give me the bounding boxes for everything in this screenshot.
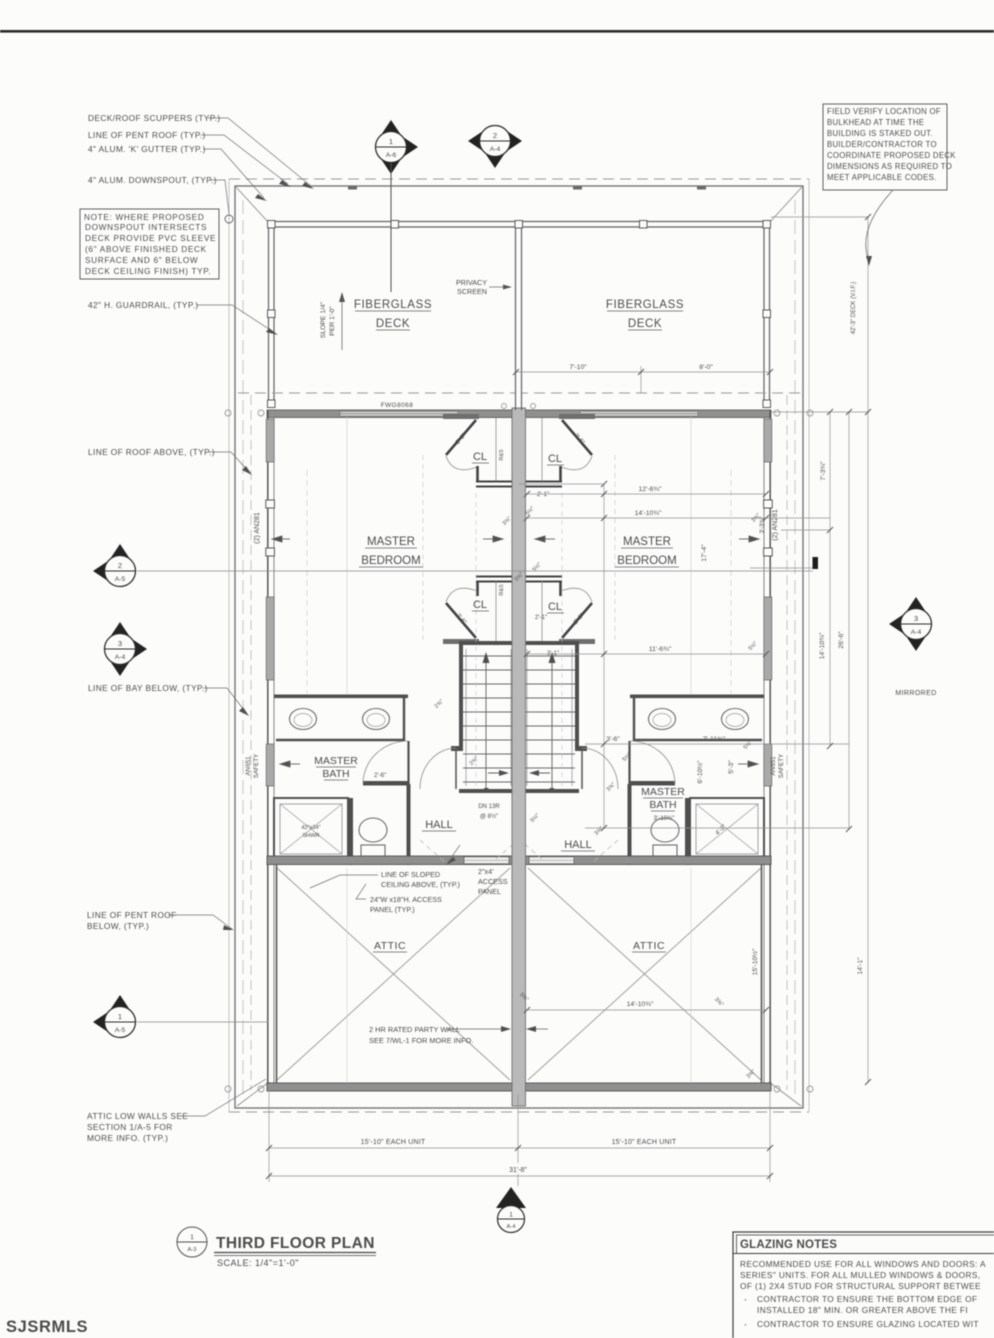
svg-text:42"x34": 42"x34"	[301, 825, 320, 831]
svg-text:-: -	[744, 1319, 747, 1329]
svg-text:42'-3" DECK (V.I.F.): 42'-3" DECK (V.I.F.)	[851, 282, 857, 334]
svg-text:MIRRORED: MIRRORED	[895, 690, 936, 697]
svg-text:A-5: A-5	[115, 1027, 126, 1034]
svg-text:ATTIC: ATTIC	[633, 940, 665, 952]
svg-text:(2) AN281: (2) AN281	[772, 509, 779, 541]
svg-text:FIBERGLASS: FIBERGLASS	[606, 299, 684, 311]
svg-text:PANEL (TYP.): PANEL (TYP.)	[370, 905, 415, 914]
svg-text:2'-1": 2'-1"	[537, 491, 549, 498]
svg-text:17'-4": 17'-4"	[701, 544, 708, 562]
svg-text:SEE 7/WL-1 FOR MORE INFO.: SEE 7/WL-1 FOR MORE INFO.	[369, 1036, 473, 1045]
svg-text:SCREEN: SCREEN	[457, 287, 487, 296]
svg-text:R&S: R&S	[499, 449, 505, 461]
svg-text:@ 8½": @ 8½"	[480, 813, 498, 820]
svg-text:A-4: A-4	[490, 146, 501, 153]
svg-text:THIRD FLOOR PLAN: THIRD FLOOR PLAN	[216, 1235, 375, 1252]
svg-text:SERIES" UNITS. FOR ALL MULLED: SERIES" UNITS. FOR ALL MULLED WINDOWS & …	[740, 1270, 980, 1280]
svg-text:(2) AN281: (2) AN281	[254, 512, 261, 544]
svg-text:4" ALUM. DOWNSPOUT, (TYP.): 4" ALUM. DOWNSPOUT, (TYP.)	[88, 175, 217, 185]
svg-text:BUILDER/CONTRACTOR TO: BUILDER/CONTRACTOR TO	[827, 140, 937, 149]
svg-text:BATH: BATH	[322, 768, 349, 780]
svg-text:14'-10¾": 14'-10¾"	[635, 510, 662, 517]
svg-text:ATTIC LOW WALLS SEE: ATTIC LOW WALLS SEE	[87, 1111, 188, 1121]
svg-text:CONTRACTOR TO ENSURE GLAZING L: CONTRACTOR TO ENSURE GLAZING LOCATED WIT	[757, 1319, 979, 1329]
svg-text:ACCESS: ACCESS	[478, 877, 508, 886]
svg-text:BEDROOM: BEDROOM	[617, 555, 676, 567]
svg-text:SAFETY: SAFETY	[778, 753, 785, 778]
svg-text:15'-10" EACH UNIT: 15'-10" EACH UNIT	[361, 1139, 426, 1146]
svg-text:LINE OF BAY BELOW, (TYP.): LINE OF BAY BELOW, (TYP.)	[88, 683, 208, 693]
svg-text:BULKHEAD AT TIME THE: BULKHEAD AT TIME THE	[827, 118, 924, 127]
svg-text:4" ALUM. 'K' GUTTER (TYP.): 4" ALUM. 'K' GUTTER (TYP.)	[88, 144, 206, 154]
svg-text:PANEL: PANEL	[478, 887, 501, 896]
svg-text:BEDROOM: BEDROOM	[361, 555, 420, 567]
svg-text:3: 3	[914, 614, 918, 623]
svg-text:3: 3	[118, 639, 122, 648]
svg-text:INSTALLED 18" MIN. OR GREATER: INSTALLED 18" MIN. OR GREATER ABOVE THE …	[757, 1305, 968, 1315]
svg-text:CL: CL	[473, 451, 487, 463]
svg-text:A-4: A-4	[115, 654, 126, 661]
svg-text:(6" ABOVE FINISHED DECK: (6" ABOVE FINISHED DECK	[85, 245, 207, 254]
svg-text:SJSRMLS: SJSRMLS	[6, 1318, 88, 1336]
svg-text:MASTER: MASTER	[314, 755, 358, 767]
svg-text:11'-6¾": 11'-6¾"	[649, 646, 672, 653]
svg-text:15'-10" EACH UNIT: 15'-10" EACH UNIT	[612, 1139, 677, 1146]
svg-text:3'-1": 3'-1"	[547, 650, 559, 657]
svg-text:MASTER: MASTER	[623, 536, 671, 548]
svg-text:LINE OF PENT ROOF: LINE OF PENT ROOF	[87, 910, 177, 920]
svg-text:3'-3¾": 3'-3¾"	[760, 517, 766, 534]
svg-text:CL: CL	[548, 601, 562, 613]
svg-text:7'-11¾": 7'-11¾"	[703, 736, 726, 743]
svg-text:14'-1": 14'-1"	[857, 957, 864, 975]
svg-text:2: 2	[118, 561, 122, 570]
svg-text:7'-3¾": 7'-3¾"	[820, 461, 827, 481]
svg-text:LINE OF SLOPED: LINE OF SLOPED	[381, 870, 440, 879]
svg-text:24"W x18"H. ACCESS: 24"W x18"H. ACCESS	[370, 895, 442, 904]
svg-text:SECTION 1/A-5 FOR: SECTION 1/A-5 FOR	[87, 1122, 173, 1132]
svg-text:LINE OF PENT ROOF (TYP.): LINE OF PENT ROOF (TYP.)	[88, 130, 206, 140]
svg-text:DECK: DECK	[376, 318, 410, 330]
svg-text:BELOW, (TYP.): BELOW, (TYP.)	[87, 921, 149, 931]
svg-text:COORDINATE PROPOSED DECK: COORDINATE PROPOSED DECK	[827, 151, 956, 160]
svg-text:SHWR: SHWR	[302, 833, 319, 839]
svg-text:SURFACE AND 6" BELOW: SURFACE AND 6" BELOW	[85, 256, 198, 265]
svg-text:LINE OF ROOF ABOVE, (TYP.): LINE OF ROOF ABOVE, (TYP.)	[88, 447, 215, 457]
svg-text:8'-0": 8'-0"	[699, 364, 713, 371]
svg-text:-: -	[744, 1294, 747, 1304]
svg-text:CEILING ABOVE, (TYP.): CEILING ABOVE, (TYP.)	[381, 880, 460, 889]
svg-text:3'-10¾": 3'-10¾"	[654, 815, 675, 822]
svg-text:1: 1	[118, 1012, 122, 1021]
svg-text:MASTER: MASTER	[641, 786, 685, 798]
svg-text:MORE INFO. (TYP.): MORE INFO. (TYP.)	[87, 1133, 168, 1143]
svg-text:MEET APPLICABLE CODES.: MEET APPLICABLE CODES.	[827, 173, 937, 182]
svg-text:DN 13R: DN 13R	[478, 804, 500, 810]
svg-text:A-6: A-6	[386, 152, 397, 159]
svg-text:14'-10¾": 14'-10¾"	[627, 1001, 654, 1008]
svg-text:2: 2	[493, 131, 497, 140]
svg-text:ATTIC: ATTIC	[374, 940, 406, 952]
svg-text:AN651: AN651	[770, 756, 777, 776]
svg-text:DIMENSIONS AS REQUIRED TO: DIMENSIONS AS REQUIRED TO	[827, 162, 952, 171]
svg-text:2'-6": 2'-6"	[374, 772, 386, 779]
svg-text:SLOPE 1/4": SLOPE 1/4"	[320, 301, 327, 338]
svg-text:CONTRACTOR TO ENSURE THE BOTTO: CONTRACTOR TO ENSURE THE BOTTOM EDGE OF	[757, 1294, 977, 1304]
svg-text:2"x4': 2"x4'	[478, 867, 494, 876]
svg-text:A-4: A-4	[506, 1224, 516, 1230]
svg-text:1: 1	[190, 1234, 194, 1241]
svg-text:2 HR RATED PARTY WALL: 2 HR RATED PARTY WALL	[369, 1025, 460, 1034]
svg-text:DECK PROVIDE PVC SLEEVE: DECK PROVIDE PVC SLEEVE	[85, 234, 216, 243]
svg-text:SAFETY: SAFETY	[253, 753, 260, 778]
svg-text:PRIVACY: PRIVACY	[456, 278, 487, 287]
svg-text:2'-1": 2'-1"	[535, 614, 547, 621]
svg-text:CL: CL	[473, 599, 487, 611]
svg-text:5'-3": 5'-3"	[728, 760, 735, 774]
svg-text:14'-10¾": 14'-10¾"	[819, 632, 826, 659]
svg-text:FWG8068: FWG8068	[381, 402, 413, 409]
svg-text:15'-10½": 15'-10½"	[751, 948, 759, 975]
svg-text:A-5: A-5	[115, 576, 126, 583]
svg-text:26'-6": 26'-6"	[838, 631, 845, 649]
svg-text:AN651: AN651	[245, 756, 252, 776]
svg-text:31'-8": 31'-8"	[509, 1167, 527, 1174]
svg-text:DECK/ROOF SCUPPERS (TYP.): DECK/ROOF SCUPPERS (TYP.)	[88, 113, 220, 123]
svg-text:PER 1'-0": PER 1'-0"	[329, 306, 336, 336]
svg-text:42" H. GUARDRAIL, (TYP.): 42" H. GUARDRAIL, (TYP.)	[88, 300, 199, 310]
svg-text:A-4: A-4	[911, 629, 922, 636]
svg-text:BUILDING IS STAKED OUT.: BUILDING IS STAKED OUT.	[827, 129, 933, 138]
svg-text:HALL: HALL	[564, 839, 592, 851]
svg-text:MASTER: MASTER	[367, 536, 415, 548]
svg-text:HALL: HALL	[425, 819, 453, 831]
svg-text:7'-10": 7'-10"	[569, 364, 587, 371]
svg-text:OF (1) 2X4 STUD FOR STRUCTURAL: OF (1) 2X4 STUD FOR STRUCTURAL SUPPORT B…	[740, 1281, 981, 1291]
svg-text:FIBERGLASS: FIBERGLASS	[354, 299, 432, 311]
svg-text:DOWNSPOUT INTERSECTS: DOWNSPOUT INTERSECTS	[85, 223, 207, 232]
svg-text:RECOMMENDED USE FOR ALL WINDOW: RECOMMENDED USE FOR ALL WINDOWS AND DOOR…	[740, 1259, 986, 1269]
svg-text:GLAZING NOTES: GLAZING NOTES	[740, 1239, 837, 1251]
svg-text:A-3: A-3	[187, 1247, 196, 1253]
svg-text:FIELD VERIFY LOCATION OF: FIELD VERIFY LOCATION OF	[827, 107, 941, 116]
svg-text:SCALE: 1/4"=1'-0": SCALE: 1/4"=1'-0"	[217, 1258, 299, 1268]
svg-text:1: 1	[389, 137, 393, 146]
svg-text:R&S: R&S	[499, 584, 505, 596]
svg-text:NOTE: WHERE PROPOSED: NOTE: WHERE PROPOSED	[84, 213, 204, 222]
svg-text:DECK: DECK	[628, 318, 662, 330]
svg-text:1: 1	[509, 1212, 513, 1219]
svg-text:12'-6¾": 12'-6¾"	[639, 486, 663, 493]
svg-text:BATH: BATH	[649, 799, 676, 811]
svg-text:6'-10½": 6'-10½"	[696, 760, 704, 784]
svg-text:3'-6": 3'-6"	[606, 736, 620, 743]
svg-text:CL: CL	[548, 453, 562, 465]
svg-text:DECK CEILING FINISH) TYP.: DECK CEILING FINISH) TYP.	[85, 267, 211, 276]
